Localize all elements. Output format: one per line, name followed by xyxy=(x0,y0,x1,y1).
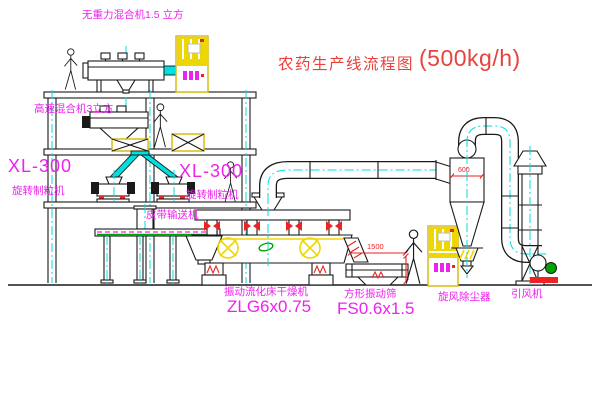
person-icon xyxy=(64,49,77,90)
label-dryer-name: 振动流化床干燥机 xyxy=(224,287,308,298)
label-granulator-right-model: XL-300 xyxy=(179,162,243,180)
label-dryer-model: ZLG6x0.75 xyxy=(227,298,311,315)
label-high-speed-mixer: 高速混合机3立方 xyxy=(34,104,113,115)
label-sieve-name: 方形振动筛 xyxy=(344,289,397,300)
control-cabinet-top xyxy=(176,36,208,92)
dryer-exhaust-duct xyxy=(268,160,446,202)
label-gravity-mixer: 无重力混合机1.5 立方 xyxy=(82,10,184,21)
gravity-mixer xyxy=(83,46,177,110)
dimension-sieve-length: 1500 xyxy=(367,243,384,251)
control-cabinet-bottom xyxy=(428,226,458,286)
crossed-hopper-box xyxy=(172,134,204,151)
spring-mounts xyxy=(202,263,333,285)
label-cyclone: 旋风除尘器 xyxy=(438,292,491,303)
dimension-cyclone-diameter: 600 xyxy=(458,167,470,174)
label-sieve-model: FS0.6x1.5 xyxy=(337,300,415,317)
label-granulator-right-name: 旋转制粒机 xyxy=(186,190,239,201)
title-text: 农药生产线流程图 xyxy=(278,52,414,74)
dryer-ports xyxy=(204,220,342,235)
mixer-outlet-pipe xyxy=(164,66,177,75)
person-icon xyxy=(154,104,168,147)
title-capacity: (500kg/h) xyxy=(419,45,521,72)
label-fan: 引风机 xyxy=(511,289,543,300)
discharge-hopper xyxy=(112,139,148,151)
induced-draft-fan xyxy=(530,255,558,283)
vibrating-sieve xyxy=(346,264,408,285)
page-title: 农药生产线流程图 (500kg/h) xyxy=(278,45,521,74)
label-granulator-left-model: XL-300 xyxy=(8,157,72,175)
label-granulator-left-name: 旋转制粒机 xyxy=(12,186,65,197)
label-belt-conveyor: 皮带输送机 xyxy=(146,210,199,221)
diagram-canvas: 农药生产线流程图 (500kg/h) 无重力混合机1.5 立方 高速混合机3立方… xyxy=(0,0,600,403)
